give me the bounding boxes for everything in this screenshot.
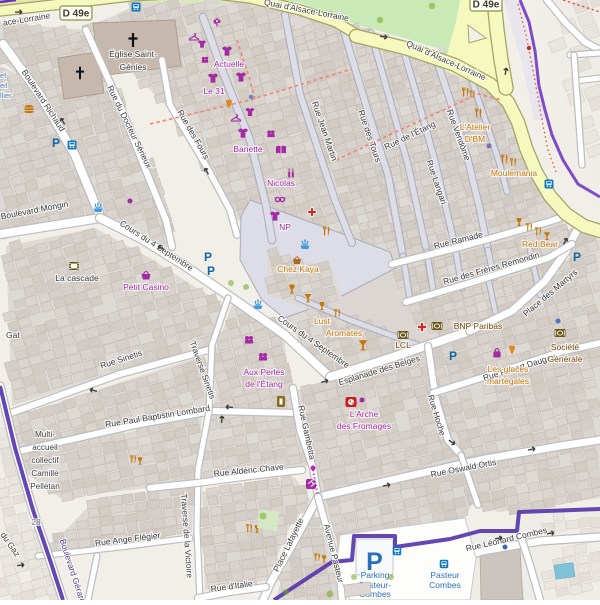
svg-text:Pelletan: Pelletan xyxy=(30,482,60,491)
svg-text:Le 31: Le 31 xyxy=(203,86,225,96)
svg-text:D 49e: D 49e xyxy=(63,9,90,20)
svg-text:NP: NP xyxy=(279,222,291,232)
svg-text:Aux Perles: Aux Perles xyxy=(243,367,284,377)
svg-text:Actuelle: Actuelle xyxy=(214,59,245,69)
svg-text:La cascade: La cascade xyxy=(55,273,99,283)
svg-text:Lust: Lust xyxy=(314,316,331,326)
svg-text:P: P xyxy=(449,349,457,363)
svg-text:Société: Société xyxy=(551,342,580,352)
svg-text:Parking: Parking xyxy=(361,570,390,580)
svg-text:Nicolas: Nicolas xyxy=(267,178,295,188)
svg-text:llier: llier xyxy=(0,91,12,100)
svg-text:martégales: martégales xyxy=(487,376,529,386)
svg-text:BNP Paribas: BNP Paribas xyxy=(454,321,503,331)
svg-text:28: 28 xyxy=(31,517,41,527)
svg-text:D'BM: D'BM xyxy=(465,134,486,144)
svg-text:Multi-: Multi- xyxy=(35,430,55,439)
svg-text:LCL: LCL xyxy=(395,340,411,350)
svg-text:Pasteur: Pasteur xyxy=(430,570,459,580)
svg-text:Petit Casino: Petit Casino xyxy=(123,282,169,292)
svg-text:Aromates: Aromates xyxy=(326,328,362,338)
svg-text:Camille: Camille xyxy=(31,469,59,478)
svg-text:Gat: Gat xyxy=(6,330,20,340)
svg-text:eil: eil xyxy=(0,81,8,90)
svg-text:Génies: Génies xyxy=(120,62,147,72)
svg-text:ef: ef xyxy=(0,71,7,80)
svg-text:L'Atelier: L'Atelier xyxy=(460,122,491,132)
svg-text:P: P xyxy=(52,136,60,150)
svg-text:P: P xyxy=(573,250,581,264)
svg-text:Red Bear: Red Bear xyxy=(522,239,558,249)
svg-text:P: P xyxy=(207,264,215,278)
svg-text:Banette: Banette xyxy=(233,144,263,154)
svg-text:Combes: Combes xyxy=(429,580,461,590)
svg-text:de l'Étang: de l'Étang xyxy=(245,379,283,389)
svg-text:P: P xyxy=(204,250,212,264)
svg-text:accueil: accueil xyxy=(32,443,58,452)
svg-text:Moulemania: Moulemania xyxy=(491,168,538,178)
svg-text:Chez Kaya: Chez Kaya xyxy=(277,264,319,274)
svg-text:des Fromages: des Fromages xyxy=(337,421,391,431)
svg-text:Église Saint-: Église Saint- xyxy=(109,49,157,59)
svg-text:Générale: Générale xyxy=(548,354,583,364)
svg-text:collectif: collectif xyxy=(31,456,59,465)
svg-text:D 49e: D 49e xyxy=(473,0,500,11)
svg-text:Les glaces: Les glaces xyxy=(488,364,529,374)
svg-text:L'Arche: L'Arche xyxy=(350,409,379,419)
